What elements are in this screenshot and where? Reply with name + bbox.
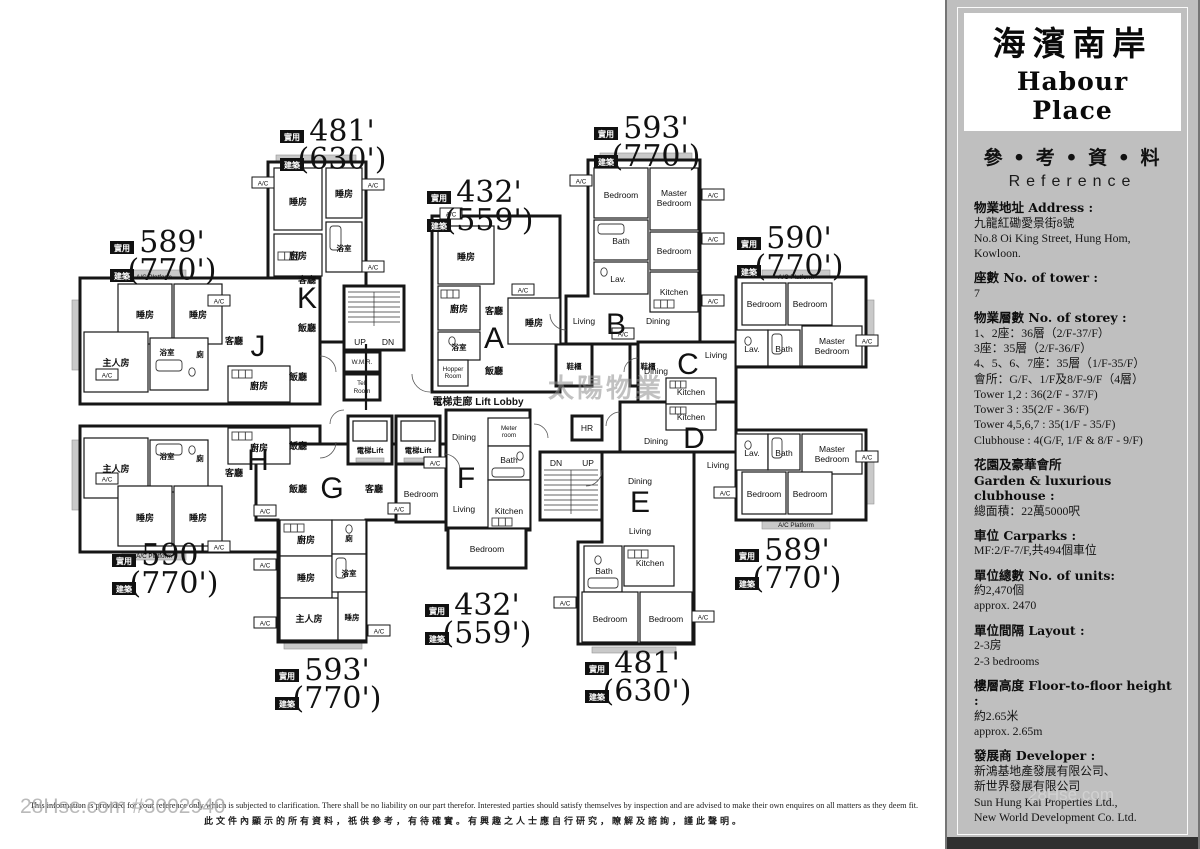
section-line: MF:2/F-7/F,共494個車位 (974, 543, 1175, 558)
room-label: Dining (644, 436, 668, 446)
section-line: Clubhouse : 4(G/F, 1/F & 8/F - 9/F) (974, 433, 1175, 448)
service-label: W.M.R. (352, 359, 373, 366)
section-line: 2-3 bedrooms (974, 654, 1175, 669)
room-label: Bath (775, 448, 793, 458)
watermark-28hse-panel: 28Hse.com (1028, 785, 1114, 805)
room-label: Lav. (744, 448, 759, 458)
room-label: 電梯Lift (405, 445, 432, 455)
ac-label: A/C (374, 629, 385, 636)
service-label: A/C Platform (778, 274, 814, 281)
area-tag-label: 實用 (589, 664, 605, 674)
room-label: Master (819, 336, 845, 346)
room-label: Lav. (610, 274, 625, 284)
area-value: (770') (128, 253, 217, 288)
area-tag-label: 實用 (429, 606, 445, 616)
wall (150, 440, 208, 492)
area-tag-label: 實用 (739, 551, 755, 561)
area-value: (559') (445, 203, 534, 238)
room-label: 飯廳 (484, 365, 503, 376)
section-header: 座數 No. of tower : (974, 270, 1175, 286)
section-line: New World Development Co. Ltd. (974, 810, 1175, 825)
ac-label: A/C (560, 601, 571, 608)
service-label: Tel. (357, 380, 367, 387)
section-line: 約2.65米 (974, 709, 1175, 724)
room-label: 睡房 (335, 188, 353, 199)
ac-label: A/C (368, 183, 379, 190)
ac-label: A/C (102, 373, 113, 380)
room-label: Living (453, 504, 475, 514)
room-label: 浴室 (342, 568, 357, 578)
room-label: 廁 (196, 349, 204, 359)
ac-label: A/C (576, 179, 587, 186)
section-header: Garden & luxurious clubhouse : (974, 473, 1175, 504)
room-label: 飯廳 (288, 371, 307, 382)
area-value: (770') (130, 566, 219, 601)
section-line: approx. 2470 (974, 598, 1175, 613)
section-header: 車位 Carparks : (974, 528, 1175, 544)
section-line: 3座：35層（2/F-36/F） (974, 341, 1175, 356)
info-section: 物業地址 Address :九龍紅磡愛景街8號No.8 Oi King Stre… (974, 200, 1175, 261)
info-section: 單位間隔 Layout :2-3房2-3 bedrooms (974, 623, 1175, 669)
section-header: 單位間隔 Layout : (974, 623, 1175, 639)
room-label: Bedroom (657, 198, 692, 208)
room-label: Dining (646, 316, 670, 326)
room-label: 客廳 (364, 483, 383, 494)
room-label: Bath (775, 344, 793, 354)
property-name-en: Habour Place (964, 67, 1181, 125)
property-name-cn: 海濱南岸 (964, 17, 1181, 65)
room-label: Dining (452, 432, 476, 442)
room-label: 睡房 (189, 309, 207, 320)
service-label: A/C Platform (778, 522, 814, 529)
ac-label: A/C (708, 299, 719, 306)
info-section: 物業層數 No. of storey :1、2座：36層（2/F-37/F）3座… (974, 310, 1175, 448)
section-line: 4、5、6、7座：35層（1/F-35/F） (974, 356, 1175, 371)
area-tag-label: 實用 (279, 671, 295, 681)
room-label: 浴室 (452, 342, 467, 352)
area-tag-label: 實用 (284, 132, 300, 142)
section-header: 物業地址 Address : (974, 200, 1175, 216)
room-label: Bath (500, 455, 518, 465)
room-label: Dining (628, 476, 652, 486)
section-header: 花園及豪華會所 (974, 457, 1175, 473)
area-tag-label: 實用 (598, 129, 614, 139)
area-tag-label: 實用 (114, 243, 130, 253)
section-header: 物業層數 No. of storey : (974, 310, 1175, 326)
section-line: Kowloon. (974, 246, 1175, 261)
room-label: Bedroom (470, 544, 505, 554)
section-line: 新鴻基地產發展有限公司、 (974, 764, 1175, 779)
area-value: (770') (293, 681, 382, 716)
ac-label: A/C (720, 491, 731, 498)
room-label: Bedroom (747, 489, 782, 499)
room-label: 客廳 (224, 335, 243, 346)
service-label: Room (354, 388, 371, 395)
room-label: 廁 (196, 453, 204, 463)
platform (356, 458, 384, 462)
room-label: Kitchen (660, 287, 689, 297)
reference-panel: 海濱南岸 Habour Place 參 • 考 • 資 • 料 Referenc… (945, 0, 1200, 849)
info-section: 樓層高度 Floor-to-floor height :約2.65米approx… (974, 678, 1175, 740)
ac-label: A/C (260, 621, 271, 628)
wall (150, 338, 208, 390)
section-line: Tower 4,5,6,7 : 35(1/F - 35/F) (974, 417, 1175, 432)
room-label: Bedroom (793, 299, 828, 309)
room-label: UP (354, 337, 366, 347)
room-label: 飯廳 (288, 440, 307, 451)
door-arc (330, 410, 344, 424)
room-label: DN (550, 458, 562, 468)
door-arc (534, 424, 548, 438)
room-label: Bedroom (815, 346, 850, 356)
section-line: Tower 3 : 35(2/F - 36/F) (974, 402, 1175, 417)
wall (401, 421, 435, 441)
room-label: Bedroom (815, 454, 850, 464)
ac-label: A/C (214, 545, 225, 552)
wall (353, 421, 387, 441)
ac-label: A/C (102, 477, 113, 484)
section-line: 2-3房 (974, 638, 1175, 653)
room-label: 廚房 (297, 534, 315, 545)
room-label: Lav. (744, 344, 759, 354)
door-arc (320, 356, 336, 372)
unit-letter-D: D (683, 422, 705, 455)
room-label: 主人房 (102, 357, 129, 368)
unit-letter-F: F (457, 462, 475, 495)
service-label: room (502, 432, 516, 439)
ac-label: A/C (708, 193, 719, 200)
unit-letter-K: K (297, 282, 317, 315)
room-label: Kitchen (677, 387, 706, 397)
room-label: 電梯Lift (357, 445, 384, 455)
room-label: 客廳 (484, 305, 503, 316)
section-line: 7 (974, 286, 1175, 301)
unit-letter-J: J (251, 330, 266, 363)
info-sections: 物業地址 Address :九龍紅磡愛景街8號No.8 Oi King Stre… (958, 200, 1187, 825)
watermark-28hse: 28Hse.com #3002940 (20, 795, 225, 819)
room-label: Master (819, 444, 845, 454)
room-label: 廚房 (450, 303, 468, 314)
service-label: Meter (501, 425, 517, 432)
room-label: Bedroom (747, 299, 782, 309)
room-label: 客廳 (224, 467, 243, 478)
unit-letter-B: B (606, 308, 626, 341)
room-label: Kitchen (636, 558, 665, 568)
reference-heading-en: Reference (958, 173, 1187, 191)
area-tag-label: 實用 (116, 556, 132, 566)
room-label: UP (582, 458, 594, 468)
section-line: Tower 1,2 : 36(2/F - 37/F) (974, 387, 1175, 402)
room-label: 廚房 (289, 250, 307, 261)
ac-label: A/C (698, 615, 709, 622)
service-label: Room (445, 373, 462, 380)
unit-letter-H: H (247, 444, 269, 477)
wall (344, 374, 380, 400)
room-label: Bedroom (593, 614, 628, 624)
room-label: Bedroom (657, 246, 692, 256)
unit-letter-A: A (484, 322, 504, 355)
service-label: A/C Platform (136, 553, 172, 560)
room-label: DN (382, 337, 394, 347)
area-value: (630') (298, 142, 387, 177)
room-label: 睡房 (189, 512, 207, 523)
section-line: 九龍紅磡愛景街8號 (974, 216, 1175, 231)
info-section: 座數 No. of tower :7 (974, 270, 1175, 301)
section-header: 樓層高度 Floor-to-floor height : (974, 678, 1175, 709)
room-label: Bedroom (649, 614, 684, 624)
section-line: 約2,470個 (974, 583, 1175, 598)
room-label: HR (581, 423, 593, 433)
property-title: 海濱南岸 Habour Place (964, 13, 1181, 131)
room-label: Kitchen (677, 412, 706, 422)
area-value: (770') (612, 139, 701, 174)
ac-label: A/C (430, 461, 441, 468)
room-label: Living (573, 316, 595, 326)
room-label: Kitchen (495, 506, 524, 516)
room-label: 廁 (345, 533, 353, 543)
room-label: 主人房 (102, 463, 129, 474)
reference-heading-cn: 參 • 考 • 資 • 料 (958, 143, 1187, 170)
unit-letter-E: E (630, 486, 650, 519)
room-label: Bath (595, 566, 613, 576)
room-label: Bedroom (604, 190, 639, 200)
ac-label: A/C (394, 507, 405, 514)
room-label: Living (705, 350, 727, 360)
panel-bottom-bar (947, 837, 1198, 849)
ac-label: A/C (258, 181, 269, 188)
room-label: 飯廳 (297, 322, 316, 333)
section-line: 1、2座：36層（2/F-37/F） (974, 326, 1175, 341)
door-arc (606, 412, 620, 426)
area-value: (770') (753, 561, 842, 596)
room-label: 睡房 (297, 572, 315, 583)
floorplan-svg: A/CA/CA/CA/CA/CA/CA/CA/CA/CA/CA/CA/CA/CA… (0, 0, 948, 792)
section-line: approx. 2.65m (974, 724, 1175, 739)
room-label: Living (707, 460, 729, 470)
room-label: Master (661, 188, 687, 198)
room-label: Bedroom (404, 489, 439, 499)
room-label: 睡房 (345, 612, 360, 622)
room-label: 浴室 (160, 347, 175, 357)
room-label: 睡房 (525, 317, 543, 328)
service-label: A/C Platform (136, 274, 172, 281)
ac-label: A/C (368, 265, 379, 272)
room-label: Bedroom (793, 489, 828, 499)
area-tag-label: 實用 (431, 193, 447, 203)
area-value: (630') (603, 674, 692, 709)
room-label: 睡房 (136, 309, 154, 320)
section-line: 會所：G/F、1/F及8/F-9/F（4層） (974, 372, 1175, 387)
room-label: Bath (612, 236, 630, 246)
area-tag-label: 實用 (741, 239, 757, 249)
wall (488, 480, 530, 528)
room-label: 廚房 (250, 380, 268, 391)
room-label: Living (629, 526, 651, 536)
ac-label: A/C (214, 299, 225, 306)
ac-label: A/C (708, 237, 719, 244)
info-section: 車位 Carparks :MF:2/F-7/F,共494個車位 (974, 528, 1175, 559)
section-line: No.8 Oi King Street, Hung Hom, (974, 231, 1175, 246)
room-label: 浴室 (337, 243, 352, 253)
area-value: (559') (443, 616, 532, 651)
room-label: 飯廳 (288, 483, 307, 494)
room-label: 浴室 (160, 451, 175, 461)
ac-label: A/C (862, 455, 873, 462)
room-label: 主人房 (295, 613, 322, 624)
unit-letter-C: C (677, 348, 699, 381)
door-arc (412, 374, 430, 392)
section-line: 總面積：22萬5000呎 (974, 504, 1175, 519)
service-label: Hopper (443, 366, 464, 373)
room-label: 睡房 (457, 251, 475, 262)
room-label: 睡房 (136, 512, 154, 523)
section-header: 發展商 Developer : (974, 748, 1175, 764)
room-label: 睡房 (289, 196, 307, 207)
ac-label: A/C (260, 509, 271, 516)
flyer-page: { "page": { "watermark_main": "28Hse.com… (0, 0, 1200, 849)
section-header: 單位總數 No. of units: (974, 568, 1175, 584)
info-section: 單位總數 No. of units:約2,470個approx. 2470 (974, 568, 1175, 614)
lobby-label: 電梯走廊 Lift Lobby (432, 395, 524, 408)
ac-label: A/C (862, 339, 873, 346)
ac-label: A/C (260, 563, 271, 570)
info-section: 花園及豪華會所Garden & luxurious clubhouse :總面積… (974, 457, 1175, 519)
ac-label: A/C (518, 288, 529, 295)
watermark-agency: 太陽物業 (548, 368, 664, 405)
panel-frame: 海濱南岸 Habour Place 參 • 考 • 資 • 料 Referenc… (957, 7, 1188, 835)
unit-letter-G: G (320, 472, 343, 505)
